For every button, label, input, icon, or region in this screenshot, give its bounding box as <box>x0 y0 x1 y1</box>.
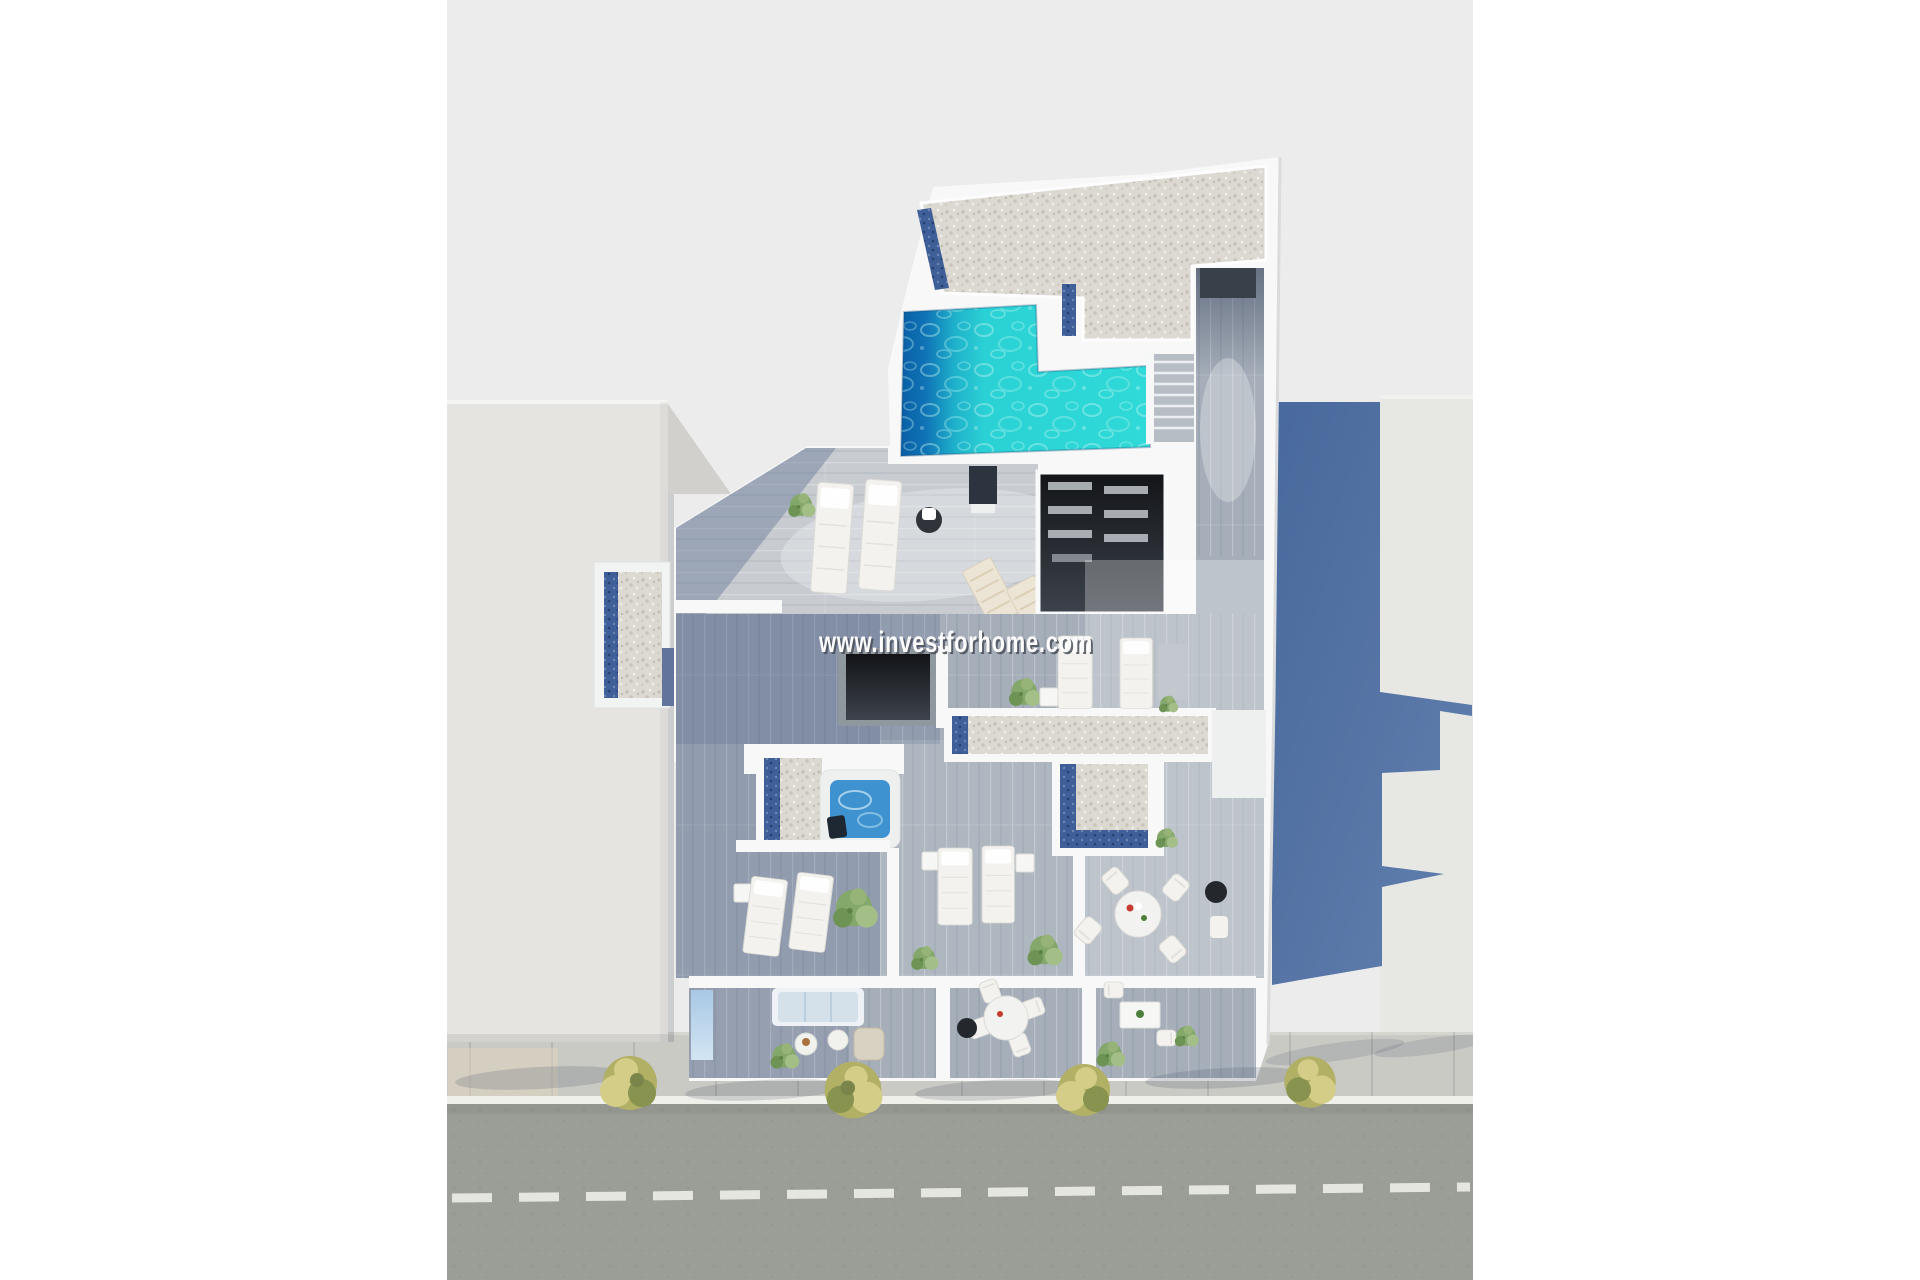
side-table <box>922 852 940 870</box>
skylight-strip <box>1062 284 1076 336</box>
pool-equipment-box <box>969 466 997 513</box>
balcony-row <box>689 976 1256 1080</box>
coffee-table <box>828 1030 848 1050</box>
side-table <box>1040 688 1058 706</box>
interior-wall <box>736 840 890 852</box>
sun-lounger <box>982 846 1014 923</box>
render-canvas: www.investforhome.com www.investforhome.… <box>0 0 1920 1280</box>
street <box>447 1096 1473 1280</box>
sofa <box>772 988 864 1026</box>
watermark: www.investforhome.com www.investforhome.… <box>818 626 1095 661</box>
side-table <box>916 507 942 533</box>
coffee-table <box>795 1033 817 1055</box>
interior-wall <box>887 848 899 980</box>
deck-corridor <box>1196 268 1264 560</box>
hot-tub <box>820 770 900 848</box>
terrace-chair <box>1210 916 1228 938</box>
interior-wall <box>676 600 782 613</box>
page-margin-left <box>0 0 447 1280</box>
balcony-front-wall <box>689 976 1256 990</box>
svg-text:www.investforhome.com: www.investforhome.com <box>818 626 1093 659</box>
page-margin-right <box>1473 0 1920 1280</box>
side-table <box>1016 854 1034 872</box>
annex-roof <box>594 562 674 708</box>
bbq-grill <box>1205 881 1227 903</box>
sun-lounger <box>858 479 902 591</box>
staircase <box>1146 350 1202 444</box>
sun-lounger <box>938 848 972 925</box>
balcony-wall <box>936 988 950 1080</box>
tree <box>1284 1056 1335 1107</box>
sun-lounger <box>810 482 854 594</box>
wicker-chair <box>854 1028 884 1060</box>
interior-wall <box>1073 848 1085 980</box>
bbq-grill <box>957 1018 977 1038</box>
glass-panel <box>691 990 713 1060</box>
shaded-lounger <box>1158 644 1188 700</box>
corridor-doorway <box>1200 268 1256 298</box>
sun-lounger <box>1120 638 1152 708</box>
